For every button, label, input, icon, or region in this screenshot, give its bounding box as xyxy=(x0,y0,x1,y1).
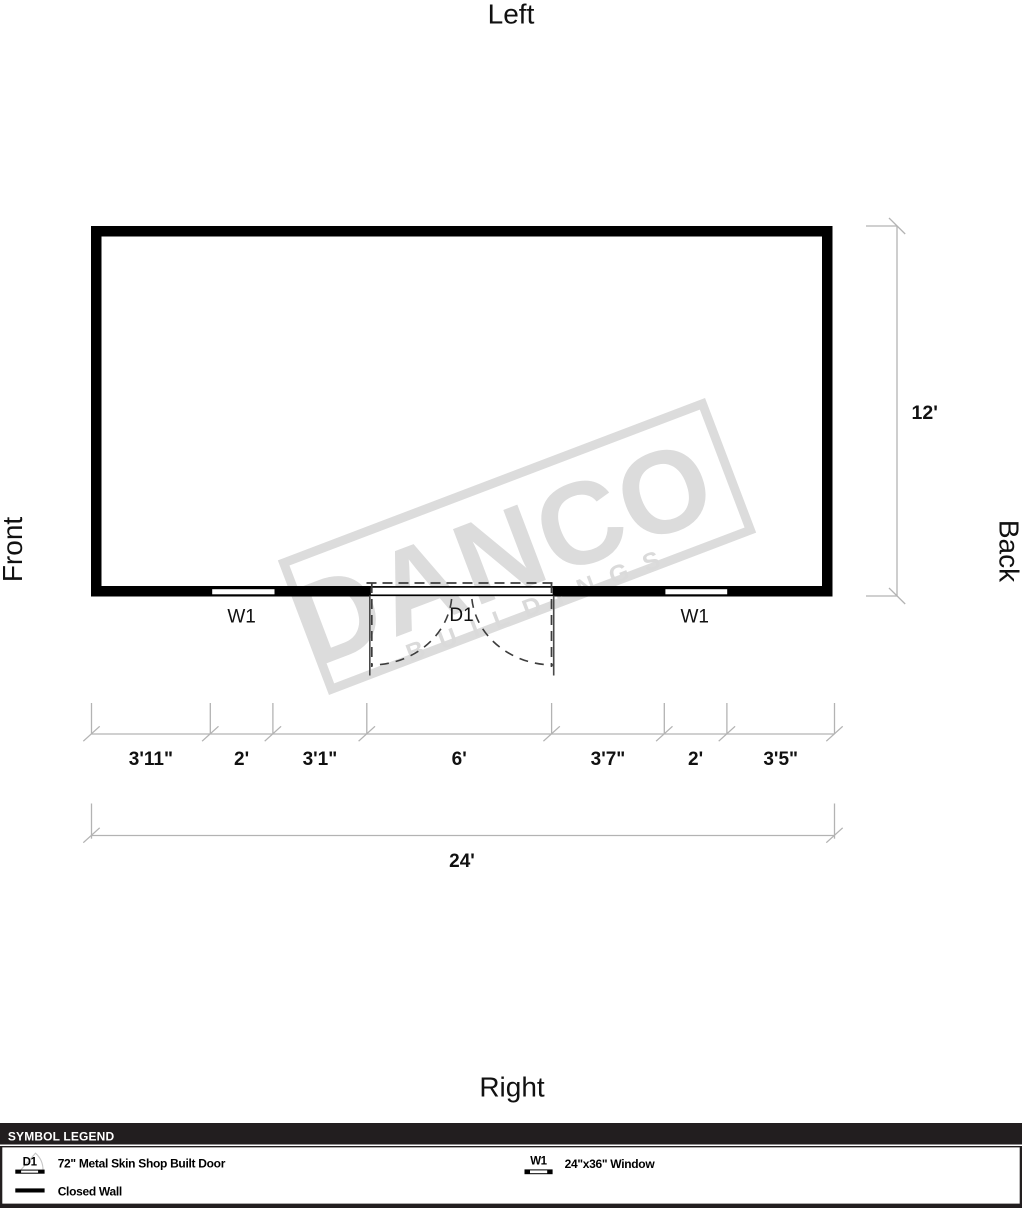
svg-text:Left: Left xyxy=(488,0,535,30)
svg-text:Closed Wall: Closed Wall xyxy=(58,1185,122,1199)
svg-text:3'1": 3'1" xyxy=(303,749,338,770)
svg-text:2': 2' xyxy=(234,749,249,770)
svg-text:Back: Back xyxy=(994,520,1022,583)
svg-text:3'5": 3'5" xyxy=(763,749,798,770)
svg-text:SYMBOL LEGEND: SYMBOL LEGEND xyxy=(8,1129,115,1143)
svg-text:W1: W1 xyxy=(227,607,256,628)
svg-text:Right: Right xyxy=(479,1072,545,1103)
svg-text:D1: D1 xyxy=(449,605,473,626)
svg-text:24"x36" Window: 24"x36" Window xyxy=(565,1157,656,1171)
svg-text:W1: W1 xyxy=(680,607,709,628)
svg-text:W1: W1 xyxy=(530,1156,547,1168)
svg-text:72" Metal Skin Shop Built Door: 72" Metal Skin Shop Built Door xyxy=(58,1156,226,1170)
svg-text:3'7": 3'7" xyxy=(591,749,626,770)
svg-text:12': 12' xyxy=(912,402,938,424)
svg-text:3'11": 3'11" xyxy=(129,749,173,770)
svg-text:D1: D1 xyxy=(23,1157,38,1169)
svg-text:24': 24' xyxy=(449,851,475,872)
svg-text:6': 6' xyxy=(452,749,467,770)
svg-text:Front: Front xyxy=(0,517,28,583)
svg-text:2': 2' xyxy=(688,749,703,770)
